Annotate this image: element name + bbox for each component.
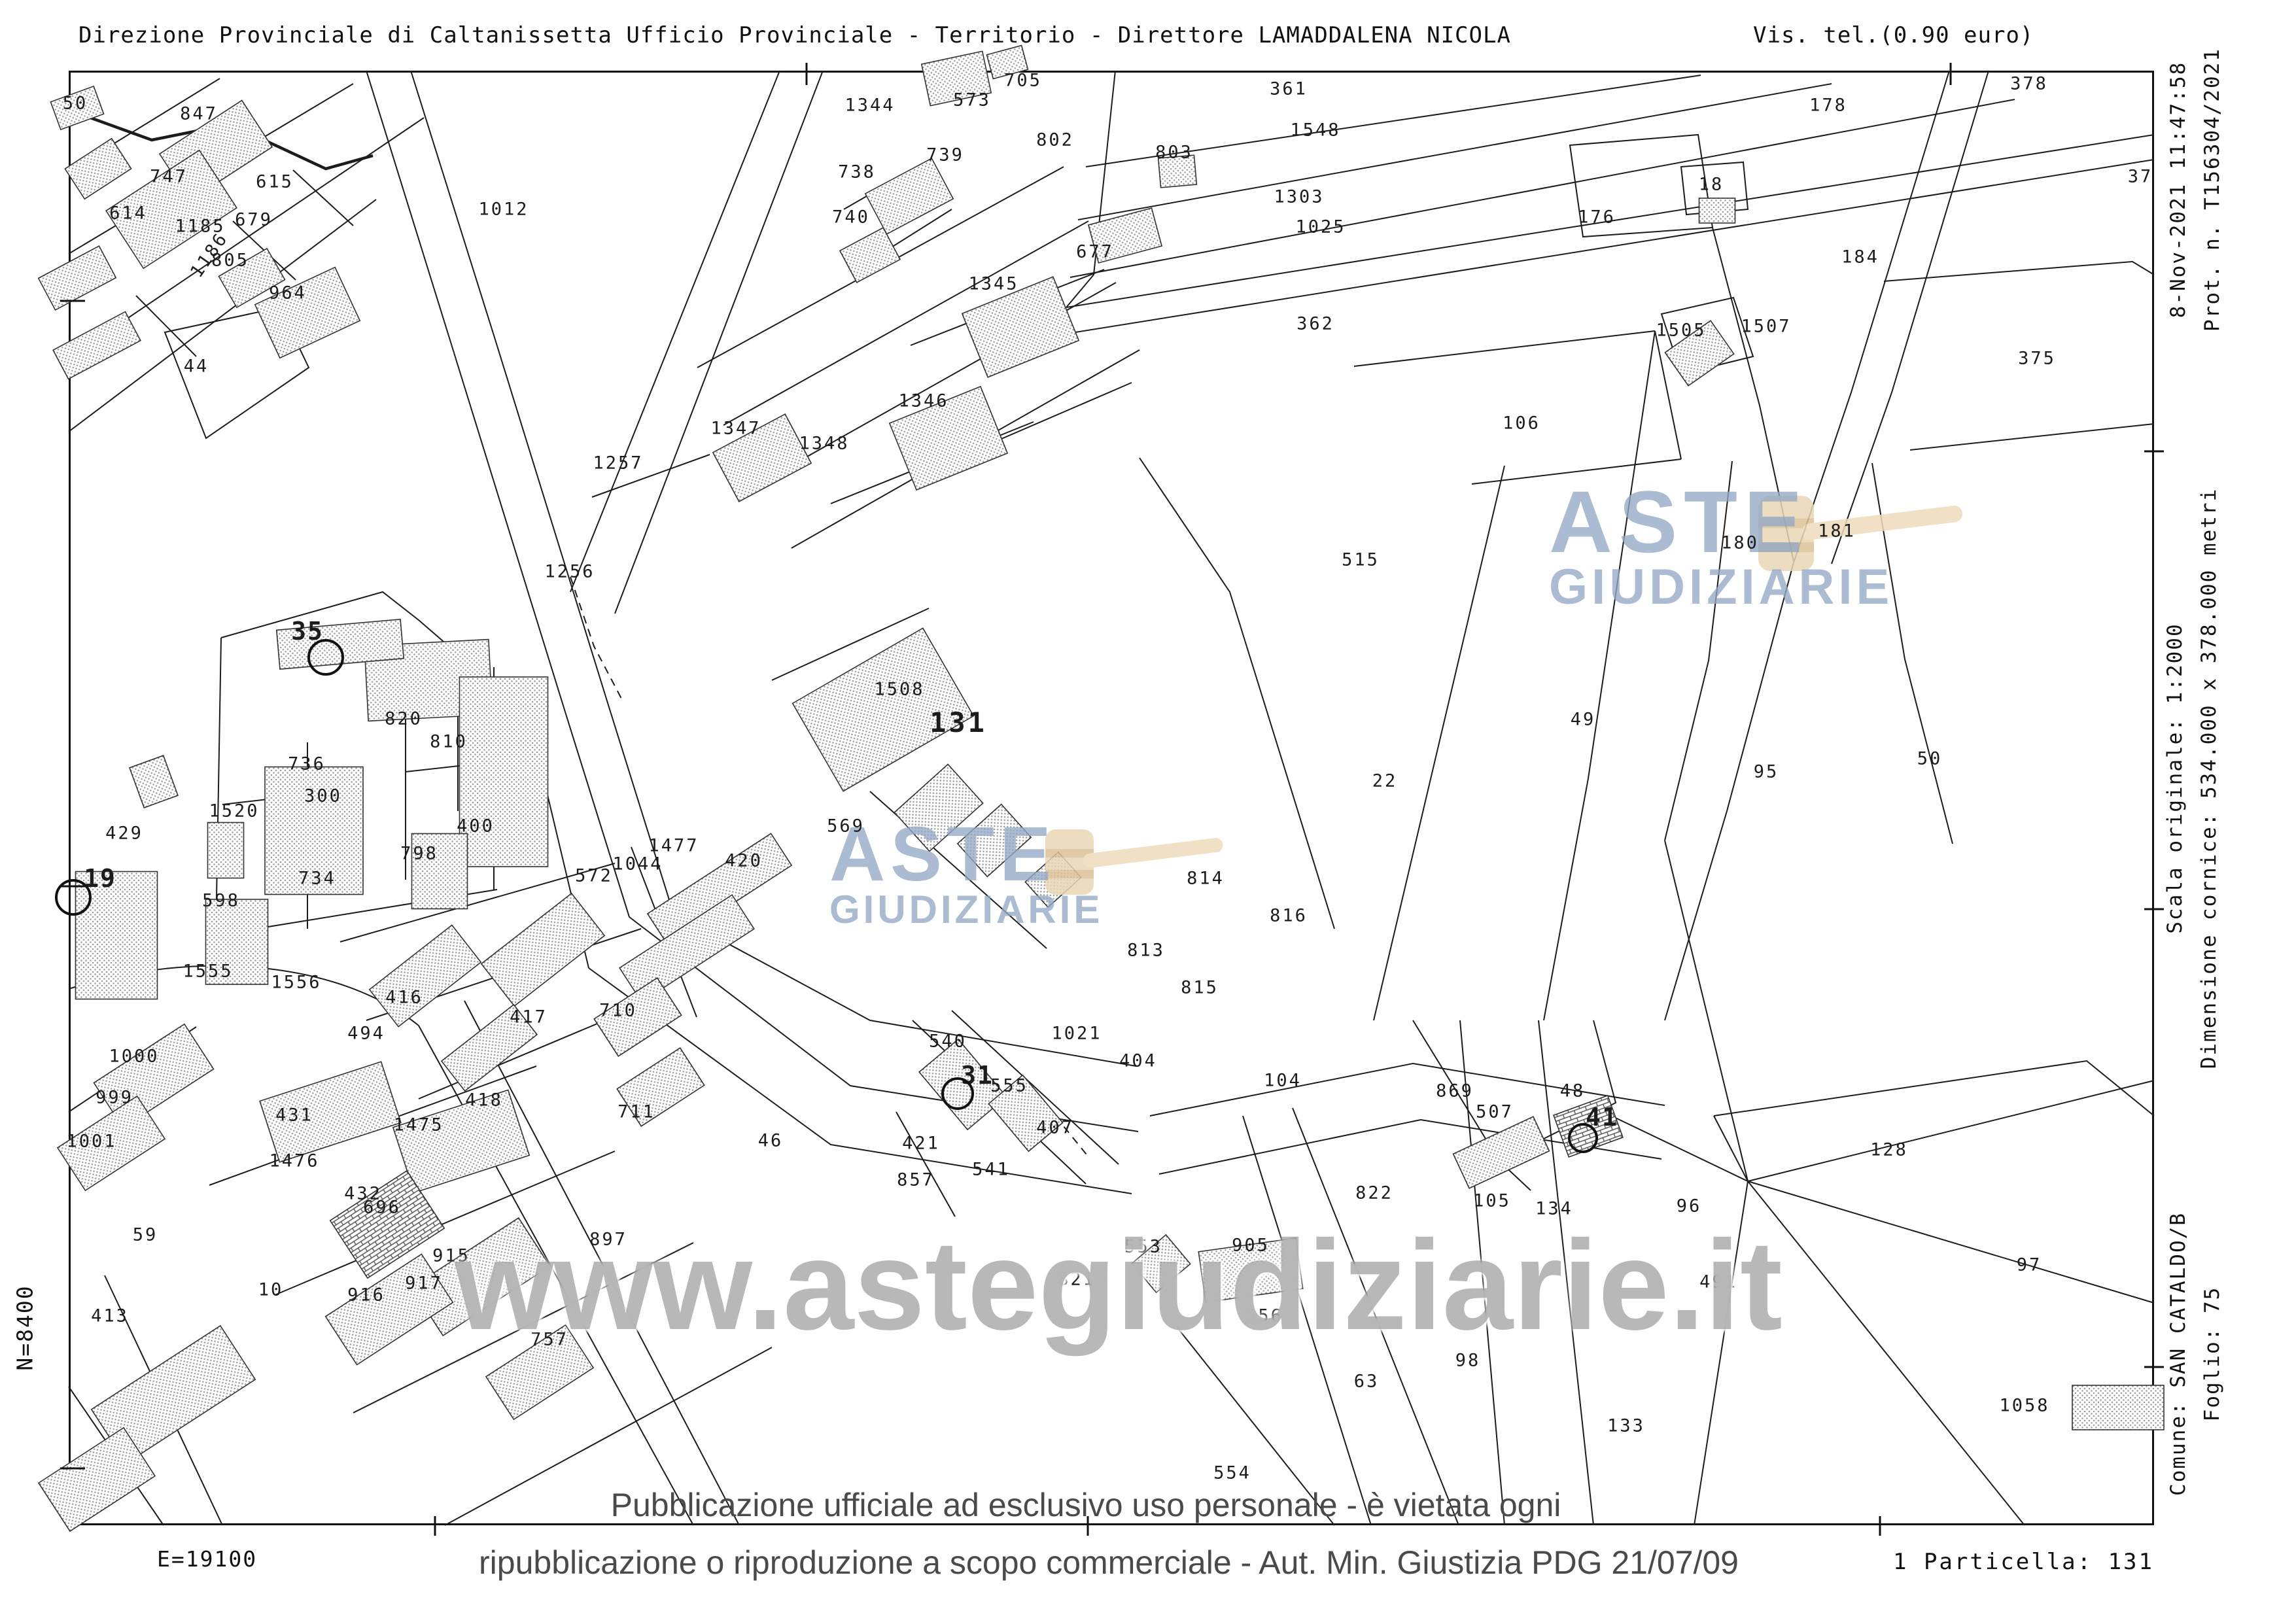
parcel-label-1256: 1256	[544, 563, 595, 581]
building-footprint	[865, 158, 953, 234]
parcel-label-541: 541	[972, 1161, 1010, 1179]
parcel-label-1001: 1001	[66, 1133, 116, 1151]
parcel-label-598: 598	[202, 892, 240, 910]
parcel-label-515: 515	[1342, 551, 1380, 569]
parcel-label-300: 300	[304, 787, 342, 805]
parcel-label-181: 181	[1818, 523, 1856, 540]
parcel-label-999: 999	[96, 1089, 133, 1107]
parcel-label-677: 677	[1076, 243, 1114, 261]
parcel-label-747: 747	[150, 168, 188, 186]
parcel-label-822: 822	[1355, 1185, 1393, 1202]
parcel-label-50: 50	[1917, 750, 1943, 768]
parcel-label-180: 180	[1721, 534, 1759, 552]
parcel-label-869: 869	[1436, 1082, 1474, 1100]
parcel-label-418: 418	[465, 1092, 503, 1109]
foglio-label: Foglio: 75	[2200, 1287, 2224, 1422]
parcel-label-1012: 1012	[478, 201, 529, 218]
east-coordinate-label: E=19100	[157, 1546, 257, 1572]
parcel-label-615: 615	[256, 173, 294, 191]
building-footprint	[2072, 1385, 2164, 1430]
aste-giudiziarie-watermark: ASTE GIUDIZIARIE	[829, 818, 1103, 928]
parcel-label-184: 184	[1841, 249, 1879, 266]
parcel-label-1556: 1556	[271, 974, 321, 992]
brand-line2: GIUDIZIARIE	[1549, 564, 1893, 611]
parcel-label-105: 105	[1473, 1192, 1511, 1210]
parcel-label-711: 711	[617, 1103, 655, 1121]
parcel-label-507: 507	[1476, 1103, 1514, 1121]
parcel-label-400: 400	[457, 818, 495, 835]
parcel-label-1507: 1507	[1741, 318, 1791, 336]
parcel-label-1505: 1505	[1656, 322, 1706, 339]
parcel-label-1344: 1344	[844, 97, 895, 114]
parcel-label-46: 46	[758, 1132, 784, 1150]
parcel-label-1058: 1058	[1999, 1397, 2049, 1415]
particella-label: 1 Particella: 131	[1893, 1549, 2154, 1575]
parcel-label-176: 176	[1578, 209, 1616, 226]
parcel-label-128: 128	[1870, 1141, 1908, 1159]
parcel-label-1025: 1025	[1295, 218, 1346, 236]
parcel-label-573: 573	[953, 92, 991, 109]
parcel-label-421: 421	[902, 1135, 940, 1152]
building-footprint	[53, 312, 141, 379]
parcel-label-1044: 1044	[612, 856, 663, 873]
building-footprint	[370, 925, 481, 1026]
parcel-label-362: 362	[1296, 315, 1334, 333]
parcel-label-916: 916	[347, 1287, 385, 1304]
parcel-label-131: 131	[930, 709, 987, 736]
parcel-label-95: 95	[1754, 763, 1779, 781]
parcel-label-1548: 1548	[1290, 122, 1340, 139]
parcel-label-802: 802	[1036, 131, 1074, 149]
url-watermark: www.astegiudiziarie.it	[455, 1212, 1783, 1358]
parcel-label-10: 10	[258, 1281, 284, 1299]
visura-date: 8-Nov-2021 11:47:58	[2166, 61, 2190, 319]
parcel-label-63: 63	[1354, 1373, 1380, 1391]
building-footprint	[1699, 198, 1735, 223]
parcel-label-133: 133	[1607, 1417, 1645, 1435]
parcel-label-805: 805	[211, 252, 249, 269]
parcel-label-696: 696	[363, 1199, 401, 1217]
parcel-label-1303: 1303	[1274, 188, 1324, 206]
cadastral-map-page: Direzione Provinciale di Caltanissetta U…	[0, 0, 2296, 1609]
protocol-number: Prot. n. T156304/2021	[2200, 48, 2224, 332]
parcel-label-1346: 1346	[898, 392, 948, 410]
parcel-label-1021: 1021	[1051, 1025, 1102, 1043]
parcel-label-375: 375	[2018, 350, 2056, 368]
parcel-label-1476: 1476	[269, 1152, 319, 1170]
parcel-label-820: 820	[385, 710, 423, 728]
parcel-label-59: 59	[133, 1226, 158, 1244]
parcel-label-429: 429	[105, 825, 143, 842]
parcel-label-740: 740	[832, 209, 870, 226]
parcel-label-106: 106	[1503, 415, 1540, 432]
disclaimer-line1: Pubblicazione ufficiale ad esclusivo uso…	[611, 1486, 1561, 1524]
parcel-label-815: 815	[1181, 979, 1219, 997]
parcel-label-803: 803	[1155, 144, 1193, 162]
parcel-label-857: 857	[897, 1171, 935, 1189]
parcel-label-734: 734	[298, 870, 336, 888]
building-footprint	[393, 1090, 529, 1192]
parcel-marker-41	[1568, 1123, 1598, 1153]
north-coordinate-label: N=8400	[12, 1285, 38, 1370]
parcel-marker-35	[307, 639, 344, 676]
parcel-label-361: 361	[1270, 80, 1308, 98]
parcel-label-798: 798	[400, 845, 438, 863]
parcel-label-1477: 1477	[648, 837, 699, 855]
original-scale: Scala originale: 1:2000	[2163, 623, 2187, 933]
parcel-label-554: 554	[1213, 1464, 1251, 1482]
parcel-label-413: 413	[91, 1307, 129, 1325]
parcel-label-1257: 1257	[593, 455, 643, 472]
parcel-label-378: 378	[2010, 75, 2048, 93]
map-geometry	[0, 0, 2296, 1609]
parcel-label-1508: 1508	[874, 681, 924, 699]
parcel-label-739: 739	[926, 147, 964, 164]
parcel-label-705: 705	[1004, 72, 1042, 90]
parcel-label-917: 917	[405, 1275, 443, 1292]
brand-line1: ASTE	[829, 818, 1103, 891]
parcel-label-810: 810	[430, 733, 468, 751]
parcel-label-813: 813	[1127, 942, 1165, 960]
parcel-label-738: 738	[838, 164, 876, 181]
frame-dimension: Dimensione cornice: 534.000 x 378.000 me…	[2197, 488, 2221, 1069]
building-footprint	[130, 755, 178, 808]
parcel-label-431: 431	[275, 1107, 313, 1124]
comune-label: Comune: SAN CATALDO/B	[2166, 1212, 2190, 1496]
parcel-label-1348: 1348	[799, 435, 849, 453]
parcel-label-814: 814	[1187, 870, 1225, 888]
parcel-label-49: 49	[1571, 711, 1596, 729]
parcel-marker-31	[941, 1077, 974, 1110]
parcel-label-555: 555	[990, 1077, 1028, 1095]
parcel-label-104: 104	[1264, 1072, 1302, 1090]
parcel-label-416: 416	[385, 989, 423, 1007]
parcel-label-407: 407	[1036, 1119, 1074, 1137]
building-footprint	[65, 139, 131, 199]
parcel-label-1000: 1000	[109, 1048, 159, 1065]
building-footprint	[481, 893, 604, 1006]
parcel-label-964: 964	[269, 285, 307, 302]
parcel-label-736: 736	[288, 755, 326, 773]
parcel-label-417: 417	[510, 1009, 548, 1026]
parcel-label-847: 847	[180, 105, 218, 123]
building-footprint	[460, 677, 548, 867]
parcel-label-44: 44	[184, 358, 209, 375]
parcel-label-18: 18	[1699, 176, 1724, 194]
parcel-label-494: 494	[347, 1025, 385, 1043]
building-footprint	[326, 1254, 453, 1364]
parcel-label-178: 178	[1809, 97, 1847, 114]
parcel-label-710: 710	[599, 1002, 637, 1020]
parcel-marker-19	[55, 879, 92, 916]
parcel-label-540: 540	[929, 1033, 967, 1050]
parcel-label-816: 816	[1270, 907, 1308, 925]
parcel-label-420: 420	[725, 852, 763, 870]
brand-line2: GIUDIZIARIE	[829, 891, 1103, 928]
parcel-label-404: 404	[1119, 1052, 1157, 1070]
parcel-label-48: 48	[1560, 1082, 1586, 1100]
parcel-label-614: 614	[109, 205, 147, 222]
parcel-label-679: 679	[235, 211, 273, 229]
parcel-label-1555: 1555	[183, 963, 233, 980]
parcel-label-572: 572	[575, 867, 613, 885]
building-footprint	[840, 228, 900, 283]
disclaimer-line2: ripubblicazione o riproduzione a scopo c…	[479, 1544, 1739, 1582]
parcel-label-97: 97	[2017, 1256, 2042, 1274]
parcel-label-1520: 1520	[209, 803, 259, 820]
parcel-label-37: 37	[2128, 168, 2153, 186]
building-footprint	[208, 823, 244, 878]
parcel-label-50: 50	[63, 95, 88, 112]
parcel-label-22: 22	[1372, 772, 1398, 790]
parcel-label-569: 569	[827, 818, 865, 835]
parcel-label-1345: 1345	[968, 275, 1018, 293]
parcel-label-1475: 1475	[393, 1116, 444, 1134]
parcel-label-1347: 1347	[710, 420, 761, 438]
